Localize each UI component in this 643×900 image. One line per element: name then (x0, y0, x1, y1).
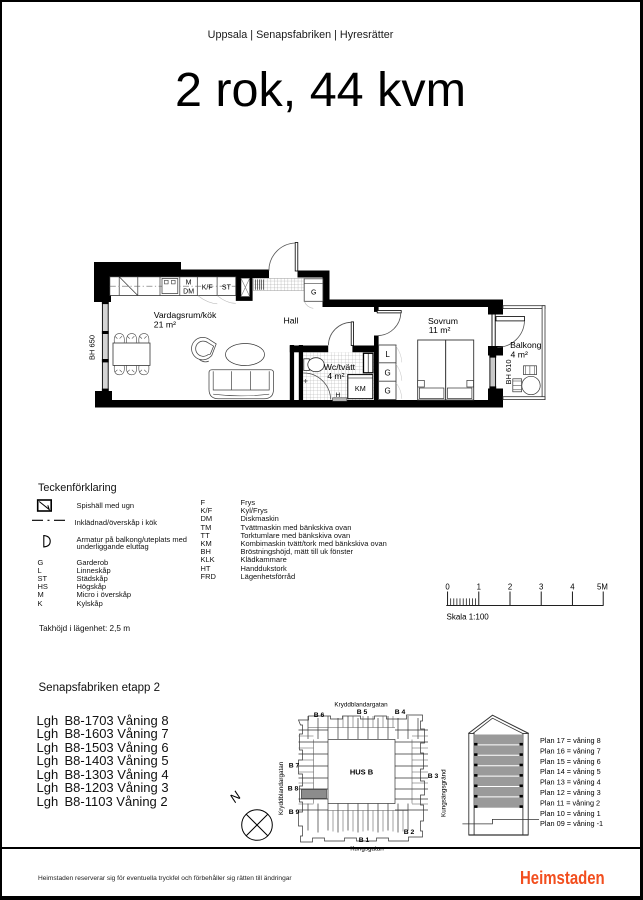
svg-text:Plan 14 = våning 5: Plan 14 = våning 5 (540, 767, 601, 776)
svg-text:L: L (385, 350, 390, 359)
svg-text:G: G (311, 290, 316, 297)
svg-text:5M: 5M (597, 583, 608, 592)
svg-text:4: 4 (570, 583, 575, 592)
svg-text:B 7: B 7 (289, 763, 300, 770)
svg-text:Plan 13 = våning 4: Plan 13 = våning 4 (540, 778, 601, 787)
svg-text:2: 2 (508, 583, 512, 592)
svg-text:B 2: B 2 (404, 829, 415, 836)
svg-text:N: N (227, 788, 245, 806)
svg-text:Plan 10 = våning 1: Plan 10 = våning 1 (540, 809, 601, 818)
svg-text:11 m²: 11 m² (429, 325, 451, 335)
svg-text:0: 0 (445, 583, 450, 592)
svg-text:M: M (186, 279, 192, 286)
svg-text:B 8: B 8 (288, 786, 299, 793)
svg-text:B 3: B 3 (428, 773, 439, 780)
svg-text:Kryddblandargatan: Kryddblandargatan (278, 761, 285, 815)
svg-text:Kungsängsgränd: Kungsängsgränd (441, 769, 448, 817)
svg-text:4 m²: 4 m² (327, 371, 344, 381)
svg-text:B 9: B 9 (289, 809, 300, 816)
svg-text:ST: ST (222, 284, 232, 291)
svg-text:21 m²: 21 m² (154, 319, 176, 329)
svg-text:1: 1 (477, 583, 481, 592)
svg-text:4 m²: 4 m² (511, 349, 528, 359)
svg-text:B 5: B 5 (357, 709, 368, 716)
svg-text:G: G (384, 387, 390, 396)
svg-text:G: G (384, 368, 390, 377)
svg-text:BH 650: BH 650 (88, 335, 97, 360)
svg-text:Plan 15 = våning 6: Plan 15 = våning 6 (540, 757, 601, 766)
svg-text:3: 3 (539, 583, 543, 592)
svg-text:Kryddblandargatan: Kryddblandargatan (334, 702, 388, 709)
svg-text:Plan 17 = våning 8: Plan 17 = våning 8 (540, 736, 601, 745)
svg-text:Skala 1:100: Skala 1:100 (447, 613, 490, 622)
svg-text:B 4: B 4 (395, 709, 406, 716)
svg-text:Plan 09 = våning -1: Plan 09 = våning -1 (540, 819, 603, 828)
svg-text:K/F: K/F (202, 284, 213, 291)
svg-text:DM: DM (183, 288, 194, 295)
svg-text:B 6: B 6 (314, 712, 325, 719)
svg-text:Plan 11 = våning 2: Plan 11 = våning 2 (540, 798, 600, 807)
svg-text:Hall: Hall (284, 315, 299, 325)
svg-text:Plan 16 = våning 7: Plan 16 = våning 7 (540, 746, 601, 755)
svg-text:B 1: B 1 (359, 837, 370, 844)
svg-text:Plan 12 = våning 3: Plan 12 = våning 3 (540, 788, 601, 797)
svg-text:HUS B: HUS B (350, 768, 374, 777)
svg-text:KM: KM (355, 384, 366, 393)
svg-text:BH 610: BH 610 (504, 359, 513, 384)
